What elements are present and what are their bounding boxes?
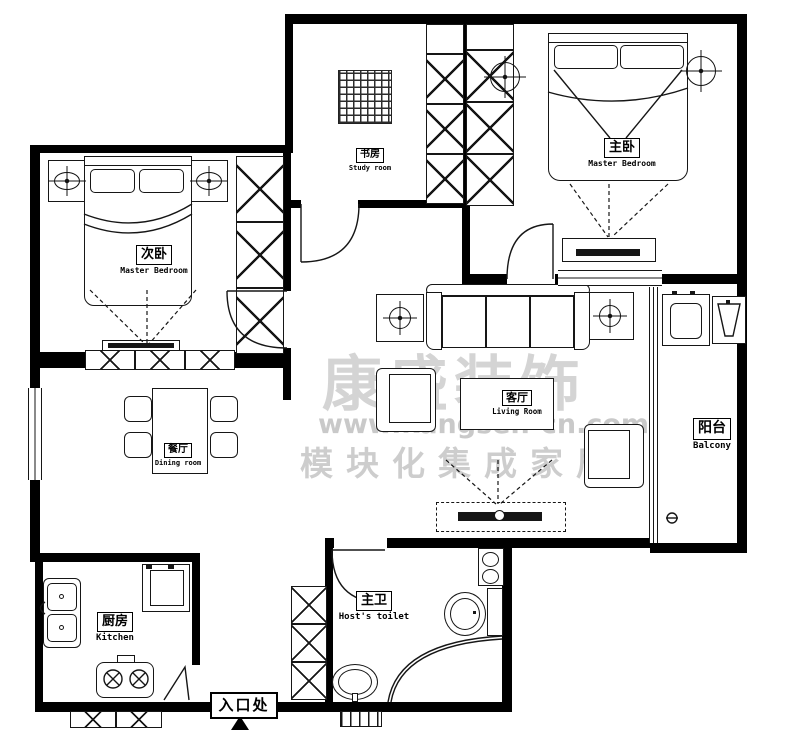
washing-machine-drum (670, 303, 702, 339)
wall-kitchen-top (35, 553, 198, 562)
dining-chair (124, 396, 152, 422)
wall-bedroom2-right-lower (283, 348, 291, 400)
balcony-label-en: Balcony (652, 441, 772, 451)
window-pane (135, 350, 185, 370)
window-bathroom (340, 711, 382, 727)
toilet-label: 主卫 Host's toilet (314, 589, 434, 622)
study-label-zh: 书房 (356, 148, 384, 163)
pillow (90, 169, 135, 193)
master-label: 主卧 Master Bedroom (562, 136, 682, 168)
window-balcony-slider (649, 287, 658, 543)
pillow (620, 45, 684, 69)
living-label: 客厅 Living Room (457, 386, 577, 416)
armchair (376, 368, 436, 432)
wall-kitchen-right (192, 553, 200, 665)
lamp-icon (490, 62, 520, 92)
sink-drain (59, 594, 64, 599)
watermark-tagline: 模块化集成家居 (300, 437, 622, 485)
wall-bedroom2-bottom-left (30, 352, 85, 368)
balcony-label-zh: 阳台 (693, 418, 731, 440)
living-label-zh: 客厅 (502, 390, 532, 406)
toilet-flush-dot (473, 611, 476, 614)
tv-mount-dot (494, 510, 505, 521)
wardrobe-study (426, 54, 464, 204)
wardrobe-cell (466, 102, 514, 154)
lamp-icon (389, 307, 411, 329)
tv-bedroom2 (108, 343, 174, 348)
balcony-floor-drain (667, 513, 677, 523)
cabinet-cell (291, 662, 327, 700)
wall-living-bottom (387, 538, 655, 548)
wall-top (285, 14, 747, 24)
wall-left-lower (30, 480, 40, 562)
cabinet-master-top (466, 24, 514, 50)
cabinet-study-top (426, 24, 464, 54)
armchair (584, 424, 644, 488)
kitchen-label-en: Kitchen (55, 633, 175, 643)
pillow (139, 169, 184, 193)
fridge-hinge (168, 565, 174, 569)
wardrobe-cell (426, 104, 464, 154)
tv-master (576, 249, 640, 256)
study-door-arc (301, 204, 359, 262)
entrance-label-zh: 入口处 (210, 692, 277, 719)
washer-mark (672, 291, 677, 295)
study-label-en: Study room (310, 164, 430, 172)
sofa-cushion (442, 296, 486, 348)
toilet-tank (487, 588, 503, 636)
armchair-seat (389, 374, 431, 423)
floor-plan: 康盛装饰 www.kangsen-cn.com 模块化集成家居 (0, 0, 806, 731)
sofa-cushion (486, 296, 530, 348)
bath-cabinet-knob (482, 552, 499, 567)
study-rug (338, 70, 392, 124)
kitchen-fold-door (164, 667, 189, 700)
bedroom2-label-en: Master Bedroom (94, 266, 214, 275)
kitchen-label: 厨房 Kitchen (55, 610, 175, 643)
stove-knob-panel (117, 655, 135, 663)
master-label-en: Master Bedroom (562, 159, 682, 168)
lamp-icon (599, 305, 621, 327)
wardrobe-cell (236, 222, 284, 288)
dining-label-en: Dining room (118, 459, 238, 467)
wall-study-left (285, 14, 293, 153)
master-door-arc (507, 224, 553, 279)
master-tv-sightlines (570, 184, 668, 237)
wardrobe-cell (466, 154, 514, 206)
washer-mark (690, 291, 695, 295)
wardrobe-cell (426, 154, 464, 204)
toilet-bowl-inner (450, 598, 480, 630)
entrance-label: 入口处 (202, 692, 286, 719)
window-kitchen (70, 711, 162, 728)
window-pane (185, 350, 235, 370)
wall-bedroom2-bottom-right (235, 352, 283, 368)
sofa-armrest (574, 292, 590, 350)
wall-kitchen-left (35, 553, 43, 712)
wardrobe-cell (236, 156, 284, 222)
dining-label-zh: 餐厅 (164, 443, 192, 458)
sofa-armrest (426, 292, 442, 350)
shower-screen-curve (388, 636, 502, 702)
dining-label: 餐厅 Dining room (118, 437, 238, 467)
bed-headboard (548, 33, 688, 43)
pillow (554, 45, 618, 69)
wall-balcony-bottom (650, 543, 747, 553)
bath-cabinet-knob (482, 569, 499, 584)
wardrobe-cell (426, 54, 464, 104)
wardrobe-cell (236, 288, 284, 354)
bed-headboard (84, 156, 192, 166)
window-pane (85, 350, 135, 370)
window-pane (70, 711, 116, 728)
dining-chair (210, 396, 238, 422)
fridge-hinge (146, 565, 152, 569)
bath-sink-faucet (352, 693, 358, 702)
bedroom2-label: 次卧 Master Bedroom (94, 243, 214, 275)
window-dining (28, 388, 42, 480)
bath-sink-inner (338, 669, 372, 695)
balcony-label: 阳台 Balcony (652, 417, 772, 451)
kitchen-label-zh: 厨房 (97, 612, 133, 632)
master-label-zh: 主卧 (604, 138, 640, 158)
living-label-en: Living Room (457, 407, 577, 416)
sofa-cushion (530, 296, 574, 348)
wall-bedroom2-top (30, 145, 291, 153)
window-master-bedroom (558, 270, 662, 286)
lamp-icon (686, 56, 716, 86)
window-bedroom2 (85, 350, 235, 370)
study-label: 书房 Study room (310, 142, 430, 172)
wall-living-bottom-stub (325, 538, 334, 548)
stove (96, 662, 154, 698)
wall-master-bottom-left (462, 274, 507, 284)
window-pane (116, 711, 162, 728)
armchair-seat (588, 430, 630, 479)
lamp-icon (54, 172, 80, 190)
wardrobe-bedroom2 (236, 156, 284, 354)
toilet-label-en: Host's toilet (314, 612, 434, 622)
lamp-icon (196, 172, 222, 190)
wall-bedroom2-right-upper (283, 145, 291, 291)
cabinet-cell (291, 624, 327, 662)
bedroom2-label-zh: 次卧 (136, 245, 172, 265)
mop-sink-faucet (726, 300, 730, 304)
fridge-inner (150, 570, 184, 606)
toilet-label-zh: 主卫 (356, 591, 392, 611)
